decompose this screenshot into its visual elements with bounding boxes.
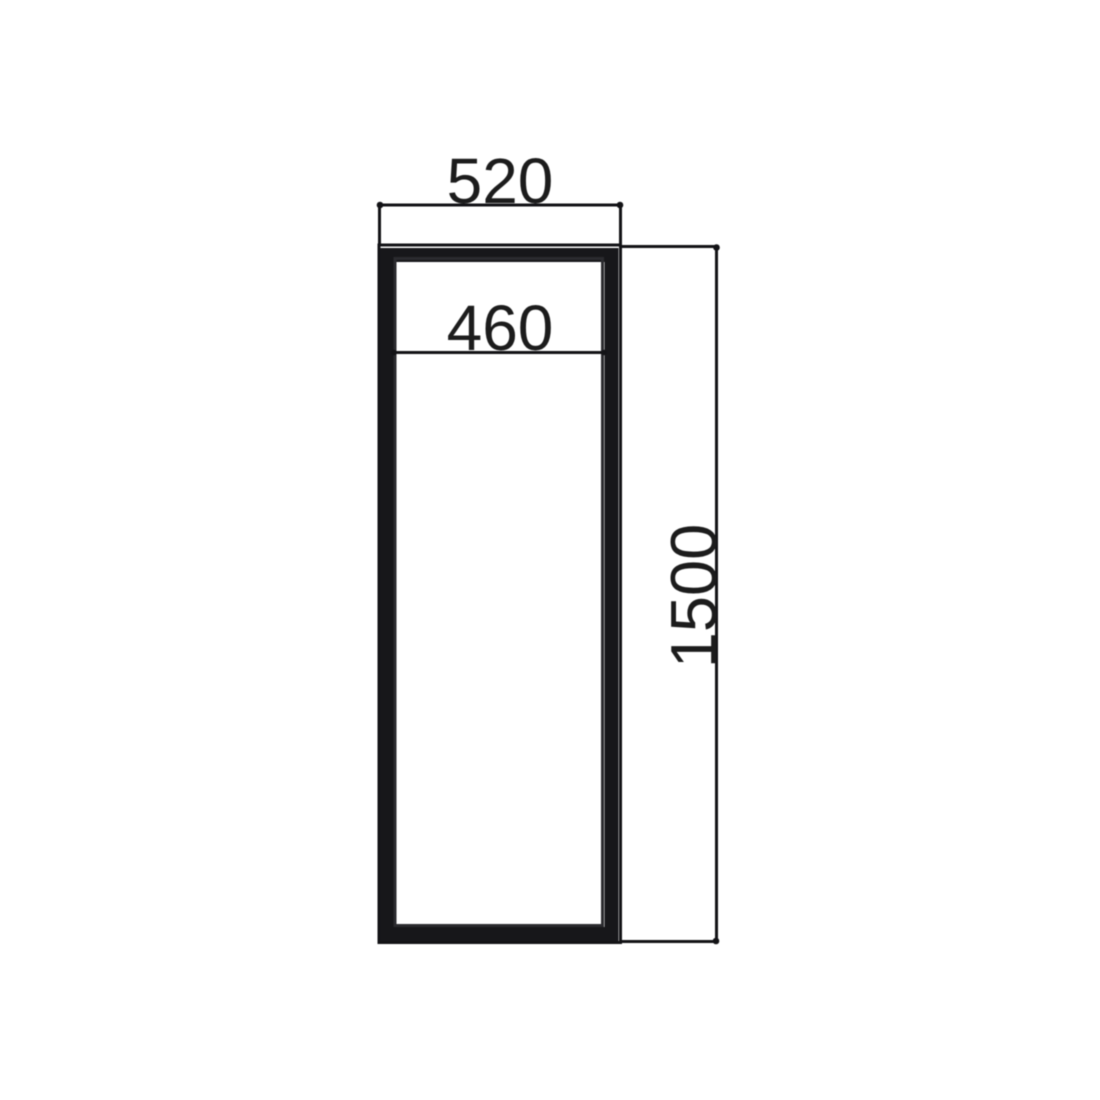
- svg-text:460: 460: [447, 292, 554, 364]
- svg-text:1500: 1500: [657, 524, 730, 669]
- svg-text:520: 520: [447, 145, 554, 217]
